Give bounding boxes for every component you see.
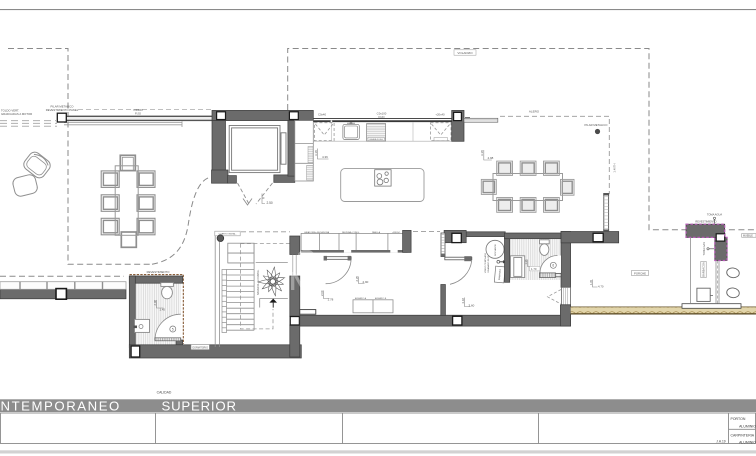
svg-text:ARMARIO A: ARMARIO A (355, 297, 367, 300)
svg-text:1.36: 1.36 (524, 259, 528, 265)
svg-text:ROCIADOR: ROCIADOR (494, 244, 497, 256)
svg-text:5: 5 (172, 327, 174, 331)
svg-text:G: G (296, 244, 316, 274)
svg-text:REVESTIMIENTO PANEL: REVESTIMIENTO PANEL (46, 108, 79, 112)
svg-text:ARMARIO B: ARMARIO B (375, 297, 387, 300)
svg-text:MUEBLE: MUEBLE (743, 234, 753, 237)
svg-text:2.50: 2.50 (267, 201, 273, 205)
svg-text:1.35: 1.35 (589, 279, 593, 285)
svg-text:TOMA GAS: TOMA GAS (702, 242, 706, 256)
svg-text:+20x40: +20x40 (435, 112, 445, 116)
svg-text:VOLADIZO: VOLADIZO (457, 51, 473, 55)
svg-text:NTEMPORANEO: NTEMPORANEO (1, 398, 121, 413)
svg-text:REVESTIMIENTO: REVESTIMIENTO (147, 270, 171, 274)
svg-text:2.90: 2.90 (363, 280, 369, 284)
svg-text:ALUMINIO: ALUMINIO (739, 425, 756, 429)
svg-text:FIJO: FIJO (135, 111, 142, 115)
svg-text:PORTON: PORTON (731, 417, 746, 421)
svg-text:VIDRIO TEMPLADO: VIDRIO TEMPLADO (484, 253, 487, 273)
svg-text:GRADUADAS A MOTOR: GRADUADAS A MOTOR (1, 112, 32, 116)
svg-text:BARBACOA: BARBACOA (702, 262, 706, 277)
svg-text:1.40TH: 1.40TH (613, 163, 617, 172)
svg-text:PILAR METALICO: PILAR METALICO (585, 123, 609, 127)
svg-text:1.70: 1.70 (531, 267, 537, 271)
svg-text:3.18: 3.18 (461, 298, 465, 304)
svg-text:J.H.19: J.H.19 (716, 439, 725, 443)
svg-text:LAVAVAJILLAS: LAVAVAJILLAS (369, 138, 383, 141)
svg-text:FIJO: FIJO (378, 115, 385, 119)
svg-text:TOMA AGUA: TOMA AGUA (707, 212, 722, 216)
svg-text:3.18: 3.18 (314, 150, 318, 156)
svg-text:1.45: 1.45 (160, 308, 166, 312)
svg-text:DORMITORIO: DORMITORIO (192, 346, 208, 349)
svg-text:4.98: 4.98 (488, 156, 494, 160)
svg-text:C0x40: C0x40 (318, 112, 327, 116)
svg-text:4.70: 4.70 (598, 285, 604, 289)
svg-text:REVESTIMIENTO: REVESTIMIENTO (695, 220, 716, 224)
svg-text:2.00: 2.00 (320, 290, 324, 296)
svg-text:4.36: 4.36 (322, 155, 328, 159)
svg-text:CALIDAD: CALIDAD (157, 391, 172, 395)
svg-text:ALERO: ALERO (529, 110, 540, 114)
svg-text:3.18: 3.18 (480, 150, 484, 156)
svg-text:CARPINTERIA: CARPINTERIA (731, 433, 755, 437)
svg-text:PORCHE: PORCHE (634, 271, 646, 275)
svg-text:R: R (262, 197, 266, 199)
svg-text:6: 6 (552, 264, 554, 268)
svg-text:1.78: 1.78 (328, 298, 334, 302)
svg-text:2.35: 2.35 (355, 276, 359, 282)
svg-text:3.60: 3.60 (469, 304, 475, 308)
svg-text:2.08: 2.08 (153, 300, 157, 306)
svg-text:ALUMINIO: ALUMINIO (739, 440, 756, 444)
svg-text:SUPERIOR: SUPERIOR (162, 398, 237, 413)
